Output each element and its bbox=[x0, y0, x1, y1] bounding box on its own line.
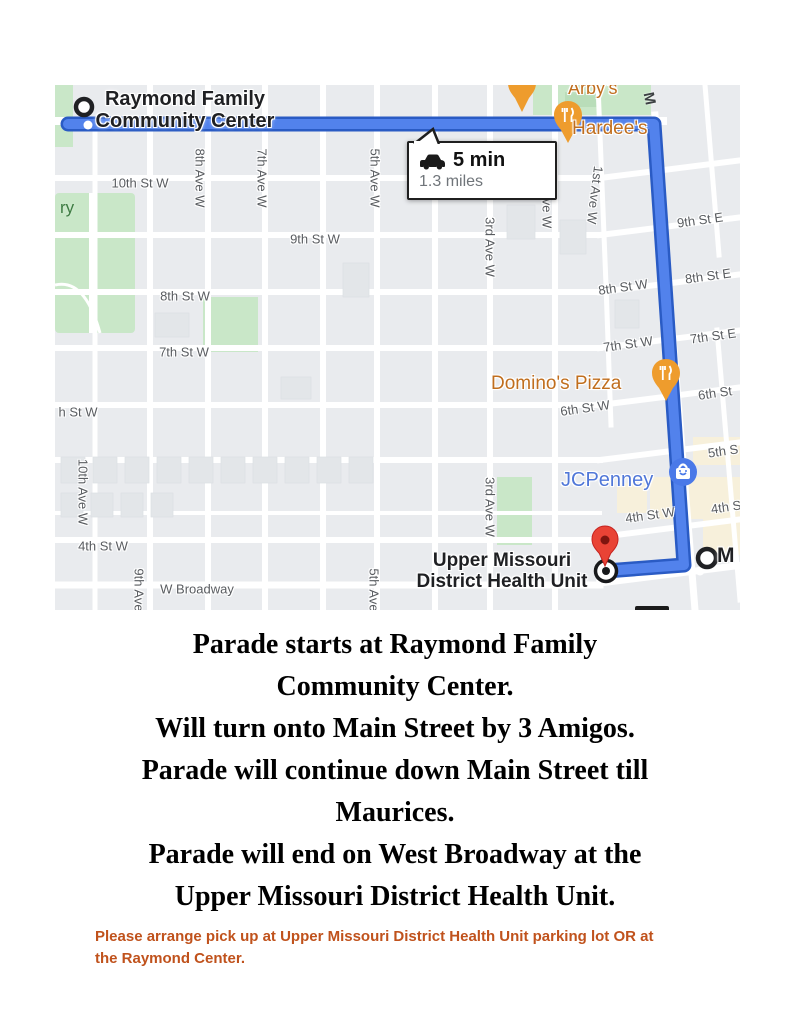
street-label-9th-ave: 9th Ave bbox=[132, 568, 147, 610]
street-label-10th-st-w: 10th St W bbox=[111, 176, 168, 191]
street-label-10th-ave-w: 10th Ave W bbox=[76, 459, 91, 525]
route-distance: 1.3 miles bbox=[419, 173, 547, 191]
route-duration: 5 min bbox=[453, 149, 505, 172]
instruction-paragraph-4: Parade will end on West Broadway at the … bbox=[95, 834, 695, 918]
street-label-3rd-ave-w: 3rd Ave W bbox=[483, 217, 498, 277]
map-artifact bbox=[635, 606, 669, 610]
street-label-9th-st-w: 9th St W bbox=[290, 232, 340, 247]
street-label-8th-ave-w: 8th Ave W bbox=[193, 148, 208, 207]
destination-label: Upper Missouri District Health Unit bbox=[404, 550, 600, 592]
instruction-paragraph-3: Parade will continue down Main Street ti… bbox=[95, 750, 695, 834]
instruction-paragraph-1: Parade starts at Raymond Family Communit… bbox=[95, 624, 695, 708]
street-label-7th-ave-w: 7th Ave W bbox=[255, 148, 270, 207]
route-map[interactable]: 10th St W 9th St W 8th St W 7th St W h S… bbox=[55, 85, 740, 610]
street-label-w-broadway: W Broadway bbox=[160, 582, 234, 597]
street-label-5th-ave: 5th Ave bbox=[367, 568, 382, 610]
instruction-paragraph-2: Will turn onto Main Street by 3 Amigos. bbox=[95, 708, 695, 750]
poi-label-hardees[interactable]: Hardee's bbox=[572, 118, 647, 140]
pickup-note: Please arrange pick up at Upper Missouri… bbox=[95, 926, 695, 970]
street-label-7th-st-w: 7th St W bbox=[159, 345, 209, 360]
street-label-6th-st-w-cut: h St W bbox=[58, 405, 97, 420]
street-label-4th-st-w: 4th St W bbox=[78, 539, 128, 554]
street-label-8th-st-w: 8th St W bbox=[160, 289, 210, 304]
poi-label-jcpenney[interactable]: JCPenney bbox=[561, 469, 653, 492]
street-label-5th-ave-w: 5th Ave W bbox=[368, 148, 383, 207]
start-label: Raymond Family Community Center bbox=[70, 88, 300, 132]
jcpenney-pin[interactable] bbox=[669, 458, 697, 486]
poi-label-dominos[interactable]: Domino's Pizza bbox=[491, 373, 621, 395]
car-icon bbox=[419, 152, 446, 170]
parade-instructions: Parade starts at Raymond Family Communit… bbox=[95, 624, 695, 970]
parade-flyer: 10th St W 9th St W 8th St W 7th St W h S… bbox=[0, 0, 791, 1024]
maurices-label-partial: M bbox=[717, 544, 740, 568]
street-label-3rd-ave-w-south: 3rd Ave W bbox=[483, 477, 498, 537]
poi-label-arbys[interactable]: Arby's bbox=[568, 85, 617, 99]
route-info-box[interactable]: 5 min 1.3 miles bbox=[407, 141, 557, 200]
park-label: ry bbox=[60, 198, 74, 218]
